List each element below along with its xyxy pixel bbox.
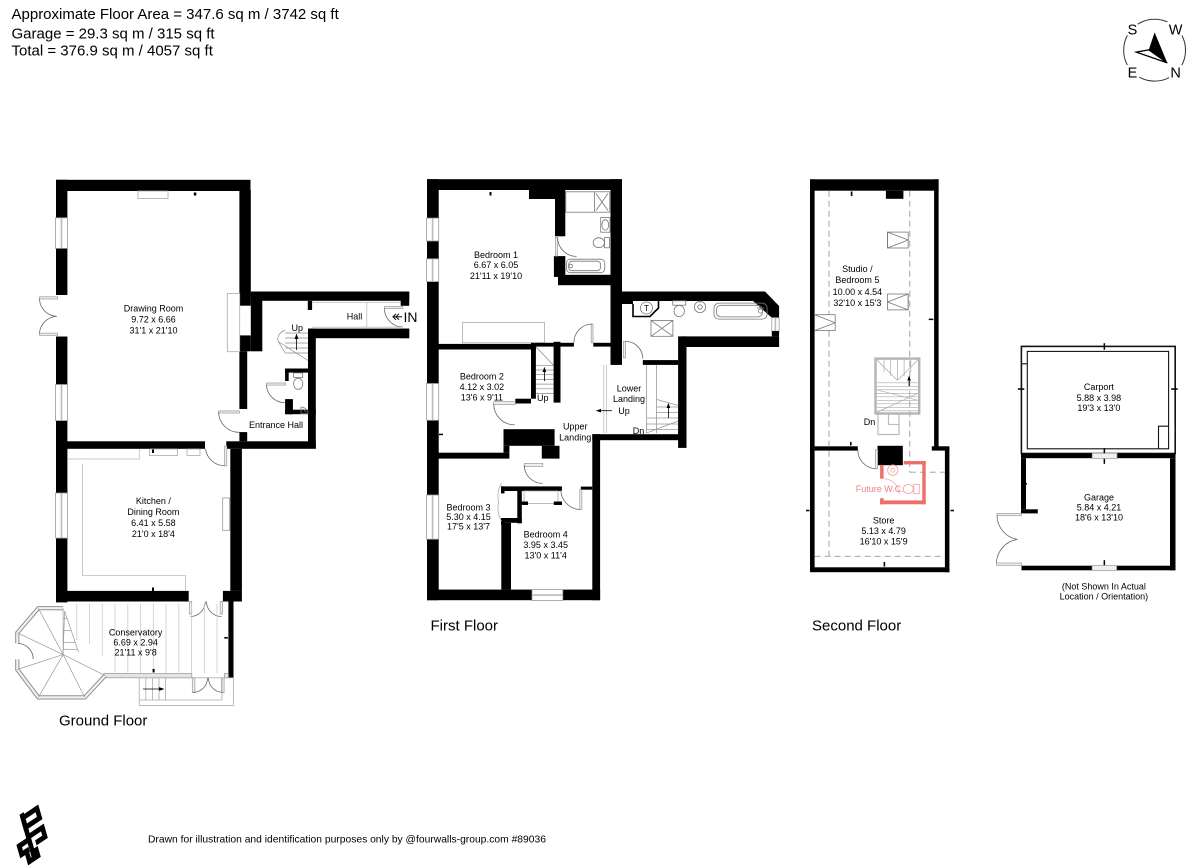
svg-text:Ground Floor: Ground Floor bbox=[59, 713, 147, 730]
svg-text:(Not Shown In Actual: (Not Shown In Actual bbox=[1062, 581, 1146, 591]
svg-text:10.00 x 4.54: 10.00 x 4.54 bbox=[833, 287, 883, 297]
svg-text:Up: Up bbox=[537, 393, 549, 403]
svg-text:Bedroom 5: Bedroom 5 bbox=[835, 275, 879, 285]
svg-text:17'5 x 13'7: 17'5 x 13'7 bbox=[447, 522, 490, 532]
svg-text:Drawn for illustration and ide: Drawn for illustration and identificatio… bbox=[148, 835, 546, 846]
svg-text:Hall: Hall bbox=[347, 312, 363, 322]
svg-text:Total = 376.9 sq m / 4057 sq f: Total = 376.9 sq m / 4057 sq ft bbox=[12, 42, 214, 59]
svg-text:3.95 x 3.45: 3.95 x 3.45 bbox=[523, 540, 568, 550]
svg-text:W: W bbox=[1169, 23, 1183, 39]
svg-text:Bedroom 3: Bedroom 3 bbox=[446, 502, 490, 512]
svg-text:18'6 x 13'10: 18'6 x 13'10 bbox=[1075, 513, 1123, 523]
svg-text:Bedroom 4: Bedroom 4 bbox=[524, 530, 568, 540]
svg-text:IN: IN bbox=[404, 309, 418, 325]
svg-text:E: E bbox=[1128, 65, 1138, 81]
svg-text:6.41 x 5.58: 6.41 x 5.58 bbox=[131, 518, 176, 528]
svg-text:Garage = 29.3 sq m / 315 sq ft: Garage = 29.3 sq m / 315 sq ft bbox=[12, 25, 216, 42]
svg-text:T: T bbox=[644, 304, 649, 313]
svg-text:21'0 x 18'4: 21'0 x 18'4 bbox=[132, 529, 175, 539]
svg-text:Bedroom 2: Bedroom 2 bbox=[460, 372, 504, 382]
svg-text:13'6 x 9'11: 13'6 x 9'11 bbox=[461, 392, 503, 402]
svg-text:Up: Up bbox=[292, 323, 304, 333]
svg-text:5.84 x 4.21: 5.84 x 4.21 bbox=[1077, 503, 1122, 513]
svg-text:Entrance Hall: Entrance Hall bbox=[249, 420, 303, 430]
svg-text:Drawing Room: Drawing Room bbox=[124, 304, 184, 314]
svg-text:21'11 x 9'8: 21'11 x 9'8 bbox=[114, 647, 156, 657]
svg-text:13'0 x 11'4: 13'0 x 11'4 bbox=[525, 551, 567, 561]
svg-text:Approximate Floor Area = 347.6: Approximate Floor Area = 347.6 sq m / 37… bbox=[12, 6, 340, 23]
svg-text:16'10 x 15'9: 16'10 x 15'9 bbox=[860, 537, 908, 547]
svg-text:Bedroom 1: Bedroom 1 bbox=[474, 250, 518, 260]
svg-text:Future W.C.: Future W.C. bbox=[856, 484, 904, 494]
svg-text:Garage: Garage bbox=[1084, 493, 1114, 503]
svg-text:19'3 x 13'0: 19'3 x 13'0 bbox=[1077, 403, 1120, 413]
svg-text:Landing: Landing bbox=[613, 394, 645, 404]
svg-text:Dn: Dn bbox=[633, 426, 645, 436]
svg-text:First Floor: First Floor bbox=[431, 618, 499, 635]
svg-text:Location / Orientation): Location / Orientation) bbox=[1060, 591, 1149, 601]
svg-text:5.13 x 4.79: 5.13 x 4.79 bbox=[861, 526, 906, 536]
svg-text:5.88 x 3.98: 5.88 x 3.98 bbox=[1077, 393, 1122, 403]
svg-text:Second Floor: Second Floor bbox=[812, 618, 901, 635]
svg-text:4.12 x 3.02: 4.12 x 3.02 bbox=[460, 382, 505, 392]
svg-text:5.30 x 4.15: 5.30 x 4.15 bbox=[446, 512, 491, 522]
svg-text:Kitchen /: Kitchen / bbox=[136, 496, 172, 506]
svg-text:S: S bbox=[1128, 23, 1138, 39]
svg-text:Up: Up bbox=[618, 406, 630, 416]
svg-text:21'11 x 19'10: 21'11 x 19'10 bbox=[470, 271, 522, 281]
svg-text:N: N bbox=[1170, 65, 1180, 81]
svg-text:6.67 x 6.05: 6.67 x 6.05 bbox=[474, 260, 519, 270]
svg-text:Upper: Upper bbox=[563, 422, 588, 432]
svg-text:Landing: Landing bbox=[559, 433, 591, 443]
svg-text:Carport: Carport bbox=[1084, 382, 1115, 392]
svg-text:6.69 x 2.94: 6.69 x 2.94 bbox=[113, 637, 158, 647]
svg-text:31'1 x 21'10: 31'1 x 21'10 bbox=[130, 326, 178, 336]
svg-text:Lower: Lower bbox=[617, 383, 642, 393]
svg-text:Store: Store bbox=[873, 515, 895, 525]
svg-text:Studio /: Studio / bbox=[842, 264, 873, 274]
svg-text:Dn: Dn bbox=[864, 417, 876, 427]
svg-text:Dining Room: Dining Room bbox=[127, 507, 179, 517]
svg-text:32'10 x 15'3: 32'10 x 15'3 bbox=[833, 298, 881, 308]
svg-text:Conservatory: Conservatory bbox=[109, 628, 163, 638]
svg-text:9.72 x 6.66: 9.72 x 6.66 bbox=[131, 315, 176, 325]
